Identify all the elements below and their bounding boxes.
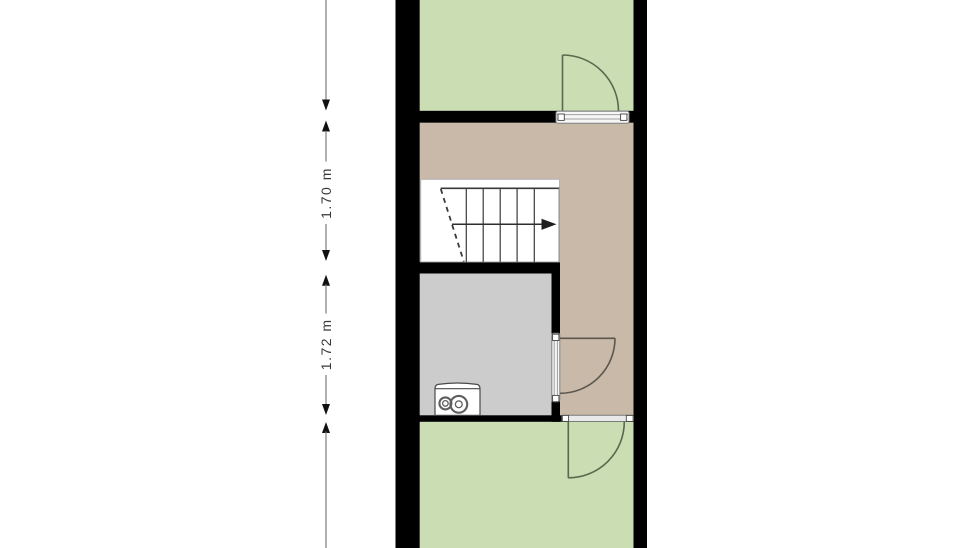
svg-text:1.70 m: 1.70 m — [318, 167, 334, 219]
svg-text:1.72 m: 1.72 m — [318, 318, 334, 370]
